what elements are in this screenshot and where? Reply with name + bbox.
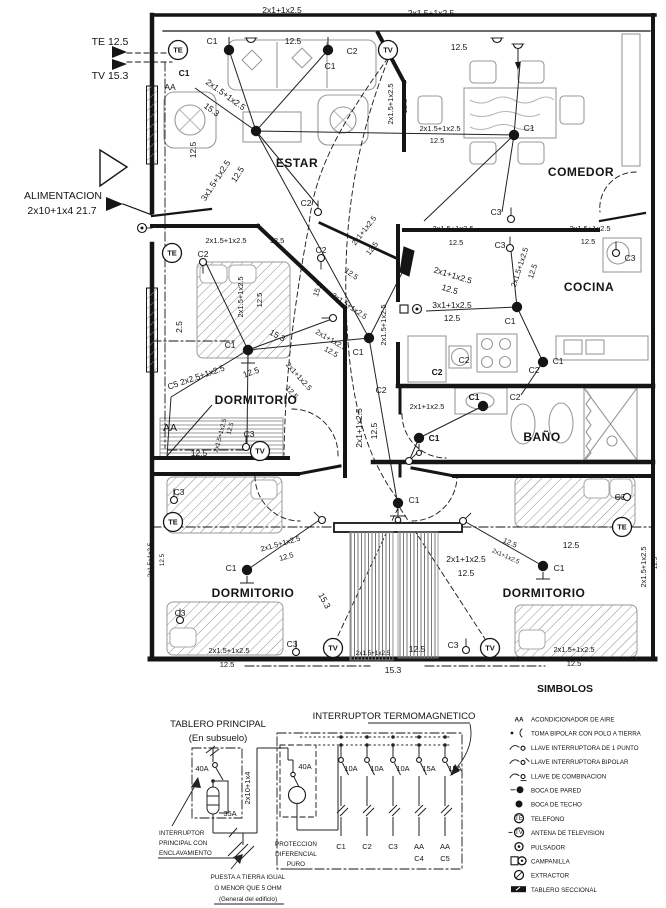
plan-annotation: C3 <box>625 253 636 263</box>
plan-annotation: C2 <box>316 245 327 255</box>
breaker-amp-label: 15A <box>422 764 435 773</box>
plan-annotation: 2x1.5+1x2.5 <box>147 542 154 577</box>
breaker-circuit-label: AA <box>440 842 450 851</box>
breaker-circuit-label: C2 <box>362 842 372 851</box>
wardrobe <box>398 532 438 658</box>
plan-annotation: 12.5 <box>229 164 247 184</box>
plan-annotation: 12.5 <box>191 448 208 458</box>
plan-annotation: 2x1.5+1x2.5 <box>553 645 594 654</box>
plan-annotation: C1 <box>553 356 564 366</box>
toma-dot <box>511 732 514 735</box>
plan-annotation: C1 <box>554 563 565 573</box>
switch-icon <box>318 255 325 262</box>
tv-arrow-icon <box>112 59 127 70</box>
alimentacion-arrow-icon <box>106 197 123 211</box>
legend-item-label: PULSADOR <box>531 844 566 851</box>
bus-junction <box>417 735 421 739</box>
bus-junction <box>339 735 343 739</box>
panel-annotation: O MENOR QUE 5 OHM <box>214 885 281 892</box>
plan-annotation: 12.5 <box>255 293 264 308</box>
plan-annotation: 12.5 <box>652 556 659 569</box>
plan-annotation: C2 <box>432 367 443 377</box>
breaker-wire <box>389 776 400 836</box>
light-outlet-node <box>224 45 234 55</box>
tabl-rect <box>511 886 526 892</box>
dining-table <box>464 88 556 138</box>
tv-outlet-label: TV <box>328 644 338 653</box>
plan-annotation: 2x1.5+1x2.5 <box>386 83 395 124</box>
plan-annotation: C1 <box>225 340 236 350</box>
sideboard <box>622 34 640 166</box>
plan-annotation: 12.5 <box>188 141 198 158</box>
toma-icon <box>520 729 522 737</box>
bocap-icon <box>511 786 524 793</box>
plan-annotation: 2x1+1x2.5 <box>446 554 486 564</box>
feed-tv-label: TV 15.3 <box>92 70 129 82</box>
breaker-circuit-label: C4 <box>414 854 424 863</box>
switch-stem <box>466 513 471 518</box>
switch-icon <box>508 216 515 223</box>
plan-annotation: 2x1+1x2.5 <box>433 265 474 286</box>
tv-outlet-label: TV <box>485 644 495 653</box>
wardrobe <box>350 532 393 660</box>
legend-item-label: ANTENA DE TELEVISION <box>531 830 604 837</box>
panel-annotation: INTERRUPTOR <box>159 830 205 837</box>
light-outlet-node <box>538 561 548 571</box>
panel-annotation: 2x10+1x4 <box>243 772 252 805</box>
plan-annotation: 2x1+1x2.5 <box>262 5 302 15</box>
plan-annotation: C5 2x2.5+1x2.5 <box>166 363 226 392</box>
telephone-outlet-label: TE <box>168 518 178 527</box>
panel-annotation: DIFERENCIAL <box>275 851 317 858</box>
switch-icon <box>613 250 620 257</box>
tv-icon: TV <box>509 828 524 837</box>
panel-annotation: (General del edificio) <box>219 896 277 903</box>
wall-pillar <box>147 86 158 164</box>
thermal-title: INTERRUPTOR TERMOMAGNETICO <box>313 711 476 722</box>
switch-stem <box>314 512 319 517</box>
panel-annotation: PUESTA A TIERRA IGUAL <box>211 874 286 881</box>
breaker-circuit-label: AA <box>414 842 424 851</box>
bocat-icon <box>516 801 523 808</box>
alimentacion-label: ALIMENTACION <box>24 190 102 202</box>
plan-annotation: C1 <box>226 563 237 573</box>
plan-annotation: C1 <box>505 316 516 326</box>
plan-annotation: 12.5 <box>451 42 468 52</box>
switch-icon <box>293 649 300 656</box>
breaker-amp-label: 10A <box>396 764 409 773</box>
room-label: DORMITORIO <box>215 393 298 407</box>
puls-dot <box>518 845 521 848</box>
plan-annotation: C3 <box>244 429 255 439</box>
breaker-contact-icon <box>443 758 448 763</box>
plan-annotation: 12.5 <box>567 659 582 668</box>
light-outlet-node <box>478 401 488 411</box>
breaker-contact-icon <box>339 758 344 763</box>
plan-annotation: 12.5 <box>369 422 379 439</box>
chair <box>518 61 544 83</box>
camp-dot <box>521 860 523 862</box>
plan-annotation: 2x1.5+1x2.5 <box>569 224 610 233</box>
plan-annotation: C2 <box>510 392 521 402</box>
switch-icon <box>463 647 470 654</box>
socket-icon <box>493 38 502 43</box>
plan-annotation: 12.5 <box>441 282 460 296</box>
telephone-outlet-label: TE <box>167 249 177 258</box>
plan-annotation: C2 <box>376 385 387 395</box>
panel-annotation: PROTECCION <box>275 841 317 848</box>
tv-outlet-label: TV <box>383 46 393 55</box>
legend-item-label: BOCA DE PARED <box>531 788 582 795</box>
plan-annotation: 2x1.5+1x2.5 <box>205 236 246 245</box>
chair <box>418 96 442 124</box>
plan-annotation: C2 <box>529 365 540 375</box>
camp-icon <box>511 857 526 865</box>
llavec-icon <box>510 774 526 781</box>
toma-icon <box>511 729 522 737</box>
plan-annotation: C1 <box>325 61 336 71</box>
plan-annotation: AA <box>163 422 177 434</box>
plan-annotation: 12.5 <box>285 36 302 46</box>
te-letters: TE <box>515 815 523 822</box>
plan-annotation: 2x1.5+1x2.5 <box>356 650 391 657</box>
switch-icon <box>319 517 326 524</box>
llave-dot <box>521 775 525 779</box>
leader-arrow <box>191 777 201 788</box>
plan-annotation: 12.5 <box>159 553 166 566</box>
cushion <box>242 50 262 70</box>
plan-annotation: 2x1.5+1x2.5 <box>236 276 245 317</box>
plan-annotation: C1 <box>353 347 364 357</box>
room-label: BAÑO <box>523 429 560 444</box>
breaker-contact-icon <box>417 758 422 763</box>
camp-box <box>511 857 518 865</box>
plan-annotation: 3x1.5+1x2.5 <box>199 158 233 203</box>
plan-annotation: C1 <box>207 36 218 46</box>
alimentacion-spec-label: 2x10+1x4 21.7 <box>27 205 96 217</box>
chair <box>518 142 544 164</box>
switch-icon <box>177 617 184 624</box>
plan-annotation: 12.5 <box>242 365 261 380</box>
switch-icon <box>406 458 413 465</box>
plan-annotation: 2x1.5+1x2.5 <box>379 304 388 345</box>
llave1-icon <box>510 746 525 751</box>
breaker-amp-label: 10A <box>370 764 383 773</box>
chair <box>560 96 584 124</box>
wardrobe-shelf <box>334 523 462 532</box>
light-outlet-node <box>242 565 252 575</box>
breaker-amp-label: 15A <box>448 764 461 773</box>
llave-dot <box>521 746 525 750</box>
breaker-circuit-label: C5 <box>440 854 450 863</box>
plan-annotation: C2 <box>198 249 209 259</box>
chair <box>470 142 496 164</box>
light-outlet-node <box>509 130 519 140</box>
plan-annotation: C3 <box>448 640 459 650</box>
plan-annotation: 12.5 <box>364 240 380 257</box>
electrical-floorplan-svg: TE 12.5 TV 15.3 ALIMENTACION 2x10+1x4 21… <box>0 0 666 908</box>
llave2-icon <box>526 758 529 761</box>
plan-annotation: C3 <box>491 207 502 217</box>
breaker-wire <box>441 776 452 836</box>
panel-annotation: 40A <box>298 762 311 771</box>
plan-annotation: 2x1.5+1x2.5 <box>208 646 249 655</box>
legend-item-label: TABLERO SECCIONAL <box>531 887 597 894</box>
panel-annotation: ENCLAVAMIENTO <box>159 850 212 857</box>
plan-annotation: C2 <box>459 355 470 365</box>
light-outlet-node <box>512 302 522 312</box>
room-label: COCINA <box>564 280 614 294</box>
bus-junction <box>365 735 369 739</box>
fuse-icon <box>207 787 219 814</box>
plan-annotation: C1 <box>469 392 480 402</box>
leader-arrow <box>233 854 243 864</box>
wall-pillar <box>147 288 158 372</box>
chair <box>470 61 496 83</box>
panel-subtitle: (En subsuelo) <box>189 733 248 744</box>
breaker-wire <box>337 776 348 836</box>
plan-annotation: 12.5 <box>458 568 475 578</box>
plan-annotation: 12.5 <box>581 237 596 246</box>
plan-annotation: 12.5 <box>526 263 539 280</box>
tv-outlet-label: TV <box>255 447 265 456</box>
panel-title: TABLERO PRINCIPAL <box>170 719 266 730</box>
llave1-icon <box>510 746 519 750</box>
plan-annotation: 2.5 <box>174 321 184 333</box>
light-outlet-node <box>393 498 403 508</box>
light-outlet-node <box>414 433 424 443</box>
switch-icon <box>171 497 178 504</box>
plan-annotation: 15.3 <box>311 281 324 298</box>
boca-techo-dot <box>516 801 523 808</box>
legend-item-label: BOCA DE TECHO <box>531 802 582 809</box>
plan-annotation: 15.3 <box>202 101 221 119</box>
switch-icon <box>624 494 631 501</box>
plan-annotation: 15.3 <box>385 665 402 675</box>
room-label: COMEDOR <box>548 165 614 179</box>
breaker-circuit-label: C1 <box>336 842 346 851</box>
pulsador-dot <box>416 308 419 311</box>
breaker-amp-label: 10A <box>344 764 357 773</box>
legend-item-label: LLAVE INTERRUPTORA DE 1 PUNTO <box>531 745 639 752</box>
switch-icon <box>507 245 514 252</box>
feed-te-label: TE 12.5 <box>92 36 129 48</box>
plan-annotation: C3 <box>174 487 185 497</box>
telephone-outlet-label: TE <box>617 523 627 532</box>
panel-annotation: 40A <box>195 764 208 773</box>
panel-schematic <box>158 723 471 904</box>
plan-annotation: 12.5 <box>409 644 426 654</box>
plan-annotation: 12.5 <box>449 238 464 247</box>
light-outlet-node <box>323 45 333 55</box>
legend-item-label: LLAVE INTERRUPTORA BIPOLAR <box>531 759 629 766</box>
plan-annotation: 2x1+1x2.5 <box>410 402 445 411</box>
plan-annotation: 12.5 <box>444 313 461 323</box>
switch-icon <box>460 518 467 525</box>
plan-annotation: 12.5 <box>400 99 409 114</box>
panel-annotation: PRINCIPAL CON <box>159 840 208 847</box>
tablero-seccional-icon <box>400 247 414 276</box>
plan-annotation: C2 <box>301 198 312 208</box>
te-icon: TE <box>515 814 524 823</box>
breaker-circuit-label: C3 <box>388 842 398 851</box>
legend-item-label: LLAVE DE COMBINACION <box>531 773 606 780</box>
light-outlet-node <box>251 126 261 136</box>
socket-icon <box>247 38 256 43</box>
plan-annotation: 12.5 <box>220 660 235 669</box>
legend-item-label: TELEFONO <box>531 816 565 823</box>
boca-pared-dot <box>517 786 524 793</box>
room-label: DORMITORIO <box>503 586 586 600</box>
llave2-icon <box>510 758 529 764</box>
llave-dot <box>521 760 525 764</box>
plan-annotation: C3 <box>495 240 506 250</box>
door-arc <box>292 409 338 456</box>
aa-icon: AA <box>514 716 524 723</box>
plan-annotation: C1 <box>179 68 190 78</box>
switch-icon <box>243 444 250 451</box>
pulsador-dot <box>141 227 144 230</box>
plan-annotation: 2x1.5+1x2.5 <box>509 246 530 288</box>
room-label: DORMITORIO <box>212 586 295 600</box>
legend-item-label: ACONDICIONADOR DE AIRE <box>531 717 615 724</box>
plan-annotation: C1 <box>524 123 535 133</box>
panel-annotation: PURO <box>287 861 305 868</box>
plan-annotation: 2x1.5+1x2.5 <box>432 224 473 233</box>
coffee-table <box>243 112 301 142</box>
alimentacion-triangle-icon <box>100 150 127 186</box>
plan-annotation: 2x1.5+1x2.5 <box>259 534 301 554</box>
plan-annotation: C1 <box>429 433 440 443</box>
differential-box <box>280 745 316 817</box>
legend-item-label: EXTRACTOR <box>531 873 570 880</box>
campanilla-icon <box>400 305 408 313</box>
bus-junction <box>443 735 447 739</box>
breaker-wire <box>415 776 426 836</box>
extr-icon <box>515 871 524 880</box>
plan-annotation: 15.3 <box>316 591 333 611</box>
plan-annotation: 2x1+1x2.5 <box>354 408 364 448</box>
panel-annotation: 35A <box>223 809 236 818</box>
llavec-icon <box>510 774 519 778</box>
plan-annotation: 12.5 <box>270 236 285 245</box>
switch-icon <box>330 315 337 322</box>
bus-junction <box>391 735 395 739</box>
cushion <box>292 48 312 68</box>
plan-annotation: AA <box>164 82 176 92</box>
plan-annotation: 2x1.5+1x2.5 <box>639 546 648 587</box>
light-outlet-node <box>364 333 374 343</box>
legend-item-label: CAMPANILLA <box>531 859 571 866</box>
telephone-outlet-label: TE <box>173 46 183 55</box>
socket-icon <box>514 44 523 49</box>
llave2-icon <box>510 760 519 764</box>
legend-title: SIMBOLOS <box>537 683 593 695</box>
differential-breaker-icon <box>289 787 306 804</box>
legend-item-label: TOMA BIPOLAR CON POLO A TIERRA <box>531 731 642 738</box>
plan-annotation: C1 <box>409 495 420 505</box>
plan-annotation: 3x1+1x2.5 <box>432 300 472 310</box>
plan-annotation: C2 <box>347 46 358 56</box>
plan-annotation: 12.5 <box>430 136 445 145</box>
light-outlet-node <box>243 345 253 355</box>
floorplan-page: TE 12.5 TV 15.3 ALIMENTACION 2x10+1x4 21… <box>0 0 666 908</box>
plan-annotation: 12.5 <box>563 540 580 550</box>
switch-icon <box>200 259 207 266</box>
tabl-icon <box>511 886 526 892</box>
plan-annotation: 12.5 <box>278 550 295 563</box>
room-label: ESTAR <box>276 156 318 170</box>
plan-annotation: 2x1.5+1x2.5 <box>408 8 455 18</box>
breaker-contact-icon <box>391 758 396 763</box>
switch-icon <box>315 209 322 216</box>
breaker-contact-icon <box>365 758 370 763</box>
puls-icon <box>515 843 523 851</box>
tv-letters: TV <box>515 829 524 836</box>
breaker-wire <box>363 776 374 836</box>
light-outlet-node <box>538 357 548 367</box>
plan-annotation: 2x1.5+1x2.5 <box>419 124 460 133</box>
aa-icon: AA <box>514 716 524 723</box>
